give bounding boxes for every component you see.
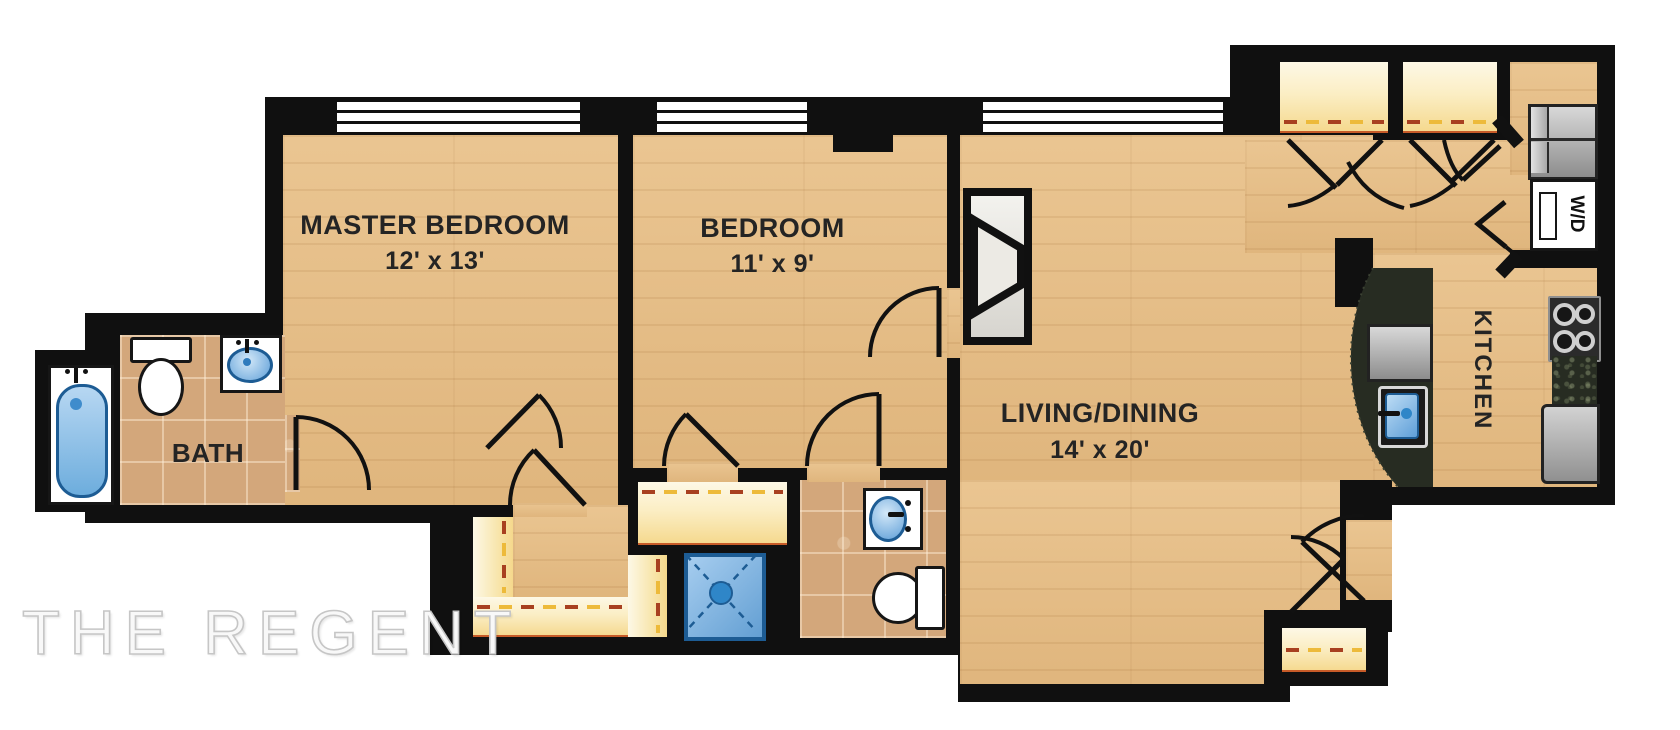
door-walkin: [510, 450, 585, 505]
floor-plan: W/D MASTER BEDROOM 12' x 13' BEDROOM 11'…: [0, 0, 1680, 730]
door-closet-a: [1288, 140, 1382, 206]
door-master: [487, 395, 561, 448]
door-entry: [1302, 515, 1364, 601]
door-bath2: [807, 394, 879, 466]
door-wd-bifold: [1444, 119, 1520, 274]
door-bedroom-closet: [664, 414, 738, 466]
door-bath: [296, 417, 369, 490]
watermark-title: THE REGENT: [22, 598, 522, 669]
door-bedroom: [870, 288, 939, 357]
